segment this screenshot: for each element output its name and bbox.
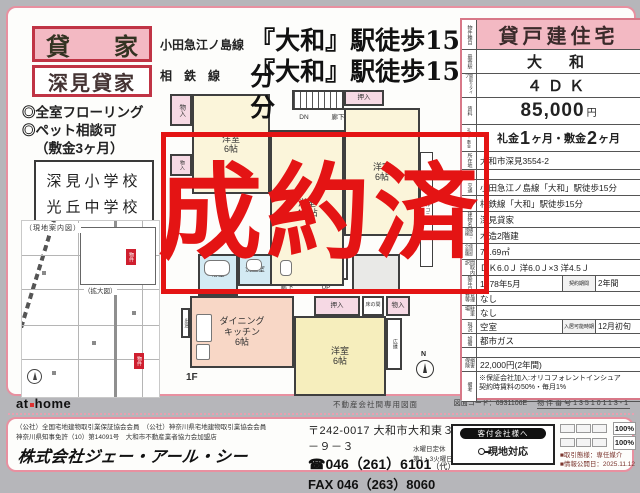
room-label: 洋室 6帖 xyxy=(331,346,349,367)
detail-row: 物件種目貸戸建住宅 xyxy=(462,20,640,50)
membership-line: （公社）全国宅地建物取引業保証協会会員 （公社）神奈川県宅地建物取引業協会会員 xyxy=(16,423,308,433)
school-box: 深見小学校 光丘中学校 xyxy=(34,160,154,229)
detail-row: 賃料85,000円 xyxy=(462,98,640,125)
detail-row: 駐車場なし xyxy=(462,306,640,320)
map-building xyxy=(52,371,56,375)
feature-item: （敷金3ヶ月） xyxy=(22,140,144,158)
fee-row: 100% xyxy=(560,422,636,435)
detail-row-label-text: 物件種目 xyxy=(467,25,472,45)
access-headlines: 小田急江ノ島線 『大和』駅徒歩15分 相 鉄 線 『大和』駅徒歩15分 xyxy=(160,21,480,83)
onsite-note-text: 現地対応 xyxy=(488,447,528,458)
compass-north-label: N xyxy=(421,351,426,358)
school-name: 光丘中学校 xyxy=(40,195,148,221)
onsite-key-note: 現地対応 xyxy=(453,443,553,458)
feature-item: ◎ペット相談可 xyxy=(22,122,144,140)
map-building xyxy=(42,271,46,275)
room-label: ダイニング キッチン 6帖 xyxy=(219,316,264,347)
detail-row: 最寄駅大 和 xyxy=(462,50,640,74)
room-label: 出窓 xyxy=(183,318,189,328)
publish-date: ■情報公開日：2025.11.12 xyxy=(560,460,636,470)
rail-line-name: 相 鉄 線 xyxy=(160,67,250,84)
detail-row-label: 物件種目 xyxy=(462,20,477,49)
detail-row-value: 木造2階建 xyxy=(477,228,640,243)
detail-row-label-text: 備考 xyxy=(467,382,472,392)
detail-row-label-text: 駐車場 xyxy=(464,306,474,319)
flyer-caption: 不動産会社間専用図面 xyxy=(333,399,418,410)
location-map: （現地案内図） （拡大図） 物件 物件 xyxy=(21,220,160,398)
school-name: 深見小学校 xyxy=(40,169,148,195)
detail-row-value: 空室入居可能時期12月初旬 xyxy=(477,320,640,333)
detail-row-value: 85,000円 xyxy=(477,98,640,124)
detail-row-label-text: 現況 xyxy=(467,322,472,332)
detail-row-label: 設備 xyxy=(462,334,477,347)
detail-row-label: 賃料 xyxy=(462,98,477,124)
map-building xyxy=(92,341,96,345)
map-street xyxy=(22,325,159,326)
detail-row-label xyxy=(462,348,477,357)
stove-icon xyxy=(196,344,210,360)
flyer-frame: 貸 家 深見貸家 ◎全室フローリング ◎ペット相談可 （敷金3ヶ月） 深見小学校… xyxy=(6,6,636,396)
fee-label-cell xyxy=(576,438,591,447)
room-storage-2f: 物入 xyxy=(170,94,192,126)
detail-row-value: 都市ガス xyxy=(477,334,640,347)
detail-row: 損害保険22,000円(2年間) xyxy=(462,358,640,372)
detail-row-value: ４ＤＫ xyxy=(477,74,640,97)
detail-row-label-text: 設備 xyxy=(467,336,472,346)
detail-row-value xyxy=(477,348,640,357)
detail-row-value: 貸戸建住宅 xyxy=(477,20,640,49)
detail-row-label: 間取りタイプ xyxy=(462,74,477,97)
rail-line-name: 小田急江ノ島線 xyxy=(160,36,250,53)
detail-row-label: 備考 xyxy=(462,372,477,401)
closet-oshiire-1f: 押入 xyxy=(314,296,360,316)
compass-icon: N xyxy=(416,360,434,378)
detail-row-label: 駐車場 xyxy=(462,306,477,319)
footer-company-box: （公社）全国宅地建物取引業保証協会会員 （公社）神奈川県宅地建物取引業協会会員 … xyxy=(6,417,634,472)
detail-row-value xyxy=(477,170,640,179)
room-label: 物入 xyxy=(177,104,184,117)
detail-row-value: ※保証会社加入:オリコフォレントインシュア 契約時賃料の50%・毎月1% xyxy=(477,372,640,401)
detail-row-value: 相鉄線「大和」駅徒歩15分 xyxy=(477,196,640,211)
detail-row-value: なし xyxy=(477,306,640,319)
detail-row-label: 最寄駅 xyxy=(462,50,477,73)
company-logo: 株式会社ジェー・アール・シー xyxy=(17,443,250,467)
closet-mono-1f: 物入 xyxy=(386,296,410,316)
detail-row: 備考※保証会社加入:オリコフォレントインシュア 契約時賃料の50%・毎月1% xyxy=(462,372,640,402)
bay-window: 出窓 xyxy=(181,308,190,338)
access-line-2: 相 鉄 線 『大和』駅徒歩15分 xyxy=(160,52,480,83)
agent-notice-box: 客付会社様へ 現地対応 xyxy=(451,424,555,465)
access-line-1: 小田急江ノ島線 『大和』駅徒歩15分 xyxy=(160,21,480,52)
veranda-hiroen: 広縁 xyxy=(386,318,402,370)
dotted-divider xyxy=(8,413,634,415)
athome-logo-dot-icon xyxy=(30,403,34,407)
detail-row xyxy=(462,348,640,358)
detail-row-value: 大 和 xyxy=(477,50,640,73)
enlarged-map-label: （拡大図） xyxy=(84,285,117,295)
property-marker: 物件 xyxy=(134,353,144,369)
room-label: 広縁 xyxy=(391,339,397,349)
room-western-6-1f: 洋室 6帖 xyxy=(294,316,386,396)
detail-row-label-text: 賃料 xyxy=(467,106,472,116)
detail-row-label-text: 最寄駅 xyxy=(467,54,472,69)
transaction-type: ■取引態様：専任媒介 xyxy=(560,451,636,461)
detail-row-label: 損害保険 xyxy=(462,358,477,371)
feature-list: ◎全室フローリング ◎ペット相談可 （敷金3ヶ月） xyxy=(22,104,144,159)
agent-notice-header: 客付会社様へ xyxy=(460,428,546,439)
property-marker: 物件 xyxy=(126,249,136,265)
enlarged-map-box xyxy=(80,227,156,285)
detail-row: 間取りタイプ４ＤＫ xyxy=(462,74,640,98)
room-label: 押入 xyxy=(331,302,344,309)
sold-stamp: 成約済 xyxy=(156,156,484,270)
detail-row-value: 礼金1ヶ月・敷金2ヶ月 xyxy=(477,125,640,151)
fee-label-cell xyxy=(576,424,591,433)
compass-icon xyxy=(27,369,42,384)
detail-row: 管理費等なし xyxy=(462,292,640,306)
membership-line: 神奈川県知事免許（10）第14091号 大和市不動産業者協力会加盟店 xyxy=(16,433,308,443)
fee-value: 100% xyxy=(613,422,636,435)
detail-row-label: 現況 xyxy=(462,320,477,333)
station-walk-text: 『大和』駅徒歩15分 xyxy=(250,52,480,124)
fee-label-cell xyxy=(560,424,575,433)
detail-row-value: 73.69㎡ xyxy=(477,244,640,259)
kitchen-sink-icon xyxy=(196,314,212,342)
floor1-label: 1F xyxy=(186,372,198,383)
house-name: 深見貸家 xyxy=(32,65,152,97)
membership-text: （公社）全国宅地建物取引業保証協会会員 （公社）神奈川県宅地建物取引業協会会員 … xyxy=(16,423,308,443)
detail-row-value: なし xyxy=(477,292,640,305)
fee-label-cell xyxy=(560,438,575,447)
brokerage-info-box: 100% 100% ■取引態様：専任媒介 ■情報公開日：2025.11.12 xyxy=(560,422,636,470)
detail-row-label-text: 損害保険 xyxy=(464,358,474,371)
map-title: （現地案内図） xyxy=(25,223,81,233)
detail-row-value: 22,000円(2年間) xyxy=(477,358,640,371)
detail-row-value: 大和市深見3554-2 xyxy=(477,152,640,169)
company-fax: FAX 046（263）8060 xyxy=(308,474,458,493)
detail-row-value: 深見貸家 xyxy=(477,212,640,227)
athome-logo-at: at xyxy=(16,396,29,411)
athome-logo-home: home xyxy=(35,396,72,411)
detail-row-label-text: 間取りタイプ xyxy=(465,74,473,97)
room-label: 床の間 xyxy=(365,303,380,309)
detail-row: 設備都市ガス xyxy=(462,334,640,348)
detail-row-value: 小田急江ノ島線「大和」駅徒歩15分 xyxy=(477,180,640,195)
key-icon xyxy=(478,448,485,455)
detail-row-value: ＤＫ6.0Ｊ 洋6.0Ｊ×3 洋4.5Ｊ xyxy=(477,260,640,275)
rental-house-badge: 貸 家 xyxy=(32,26,152,62)
detail-row-value: 1978年5月契約期間2年間 xyxy=(477,276,640,291)
fee-value: 100% xyxy=(613,436,636,449)
feature-item: ◎全室フローリング xyxy=(22,104,144,122)
fee-row: 100% xyxy=(560,436,636,449)
map-street xyxy=(78,221,79,397)
detail-row: 現況空室入居可能時期12月初旬 xyxy=(462,320,640,334)
map-building xyxy=(132,311,136,315)
fee-label-cell xyxy=(592,424,607,433)
room-label: 物入 xyxy=(392,302,405,309)
athome-logo: athome xyxy=(16,396,71,411)
tokonoma-alcove: 床の間 xyxy=(362,296,384,316)
fee-label-cell xyxy=(592,438,607,447)
